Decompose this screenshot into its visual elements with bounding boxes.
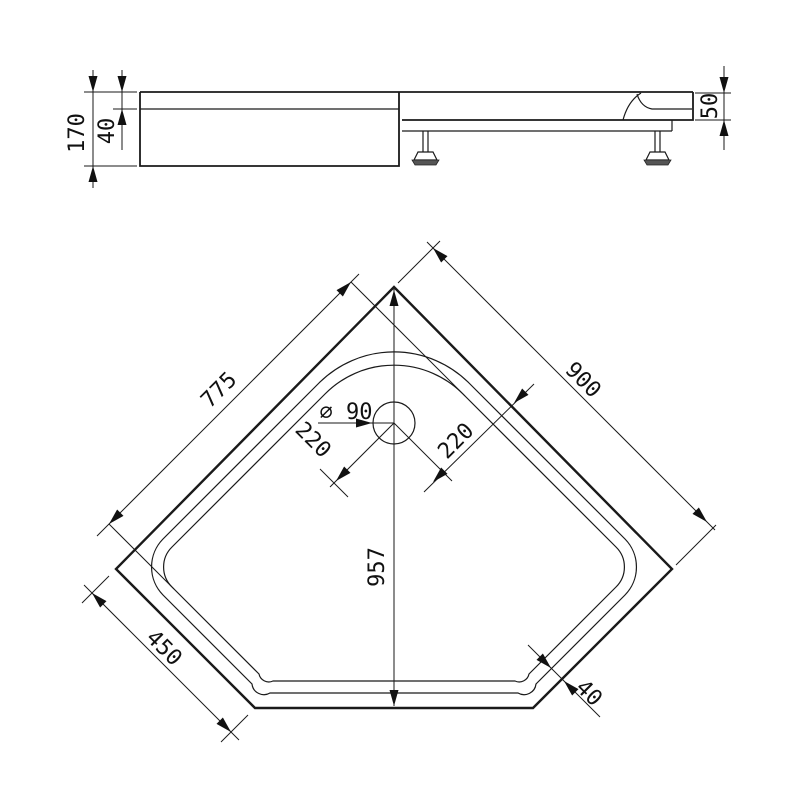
plan-view: 957 ⌀ 90 220 220 <box>82 241 716 742</box>
dimension-900: 900 <box>398 241 716 565</box>
leg-left-stem <box>423 131 428 152</box>
support-frame <box>402 120 672 131</box>
arrowhead <box>720 120 729 136</box>
dimension-220-right: 220 <box>394 384 534 492</box>
arrowhead <box>430 468 448 486</box>
technical-drawing-canvas: 170 40 50 <box>0 0 800 800</box>
dim-label-900: 900 <box>560 357 606 403</box>
arrowhead <box>390 290 399 306</box>
dimension-775: 775 <box>97 274 465 589</box>
arrowhead <box>720 77 729 93</box>
leg-left-foot <box>414 152 437 160</box>
shower-tray-drawing: 170 40 50 <box>0 0 800 800</box>
dimension-220-left: 220 <box>290 417 394 497</box>
extension-line-900-bottom <box>676 525 716 565</box>
dimension-50: 50 <box>695 66 731 150</box>
dim-label-957: 957 <box>365 547 390 587</box>
arrowhead <box>390 690 399 706</box>
dim-label-40-plan: 40 <box>570 675 606 711</box>
leg-right-pad <box>644 160 671 165</box>
apron-outline <box>140 92 399 166</box>
arrowhead <box>89 76 98 92</box>
arrowhead <box>118 76 127 92</box>
side-view-tray-profile <box>402 92 693 131</box>
leg-right-foot <box>646 152 669 160</box>
rim-underside <box>637 94 692 109</box>
leg-right-stem <box>655 131 660 152</box>
leg-left-pad <box>412 160 439 165</box>
dim-label-170: 170 <box>65 113 90 153</box>
dim-label-50: 50 <box>698 93 723 120</box>
dim-label-drain: ⌀ 90 <box>320 400 373 425</box>
dim-label-220-right: 220 <box>433 418 479 464</box>
extension-line-775-bottom <box>109 524 174 589</box>
extension-line-900-top <box>398 241 440 283</box>
dimension-450: 450 <box>82 576 248 742</box>
arrowhead <box>89 166 98 182</box>
leg-left <box>412 131 439 165</box>
dimension-40-side: 40 <box>95 70 137 150</box>
extension-line-775-top <box>351 282 465 396</box>
dim-label-40-side: 40 <box>95 118 120 145</box>
leg-right <box>644 131 671 165</box>
side-view: 170 40 50 <box>65 66 731 188</box>
dimension-drain: ⌀ 90 <box>318 400 394 428</box>
dim-label-775: 775 <box>196 367 242 413</box>
tray-underside <box>402 92 693 120</box>
